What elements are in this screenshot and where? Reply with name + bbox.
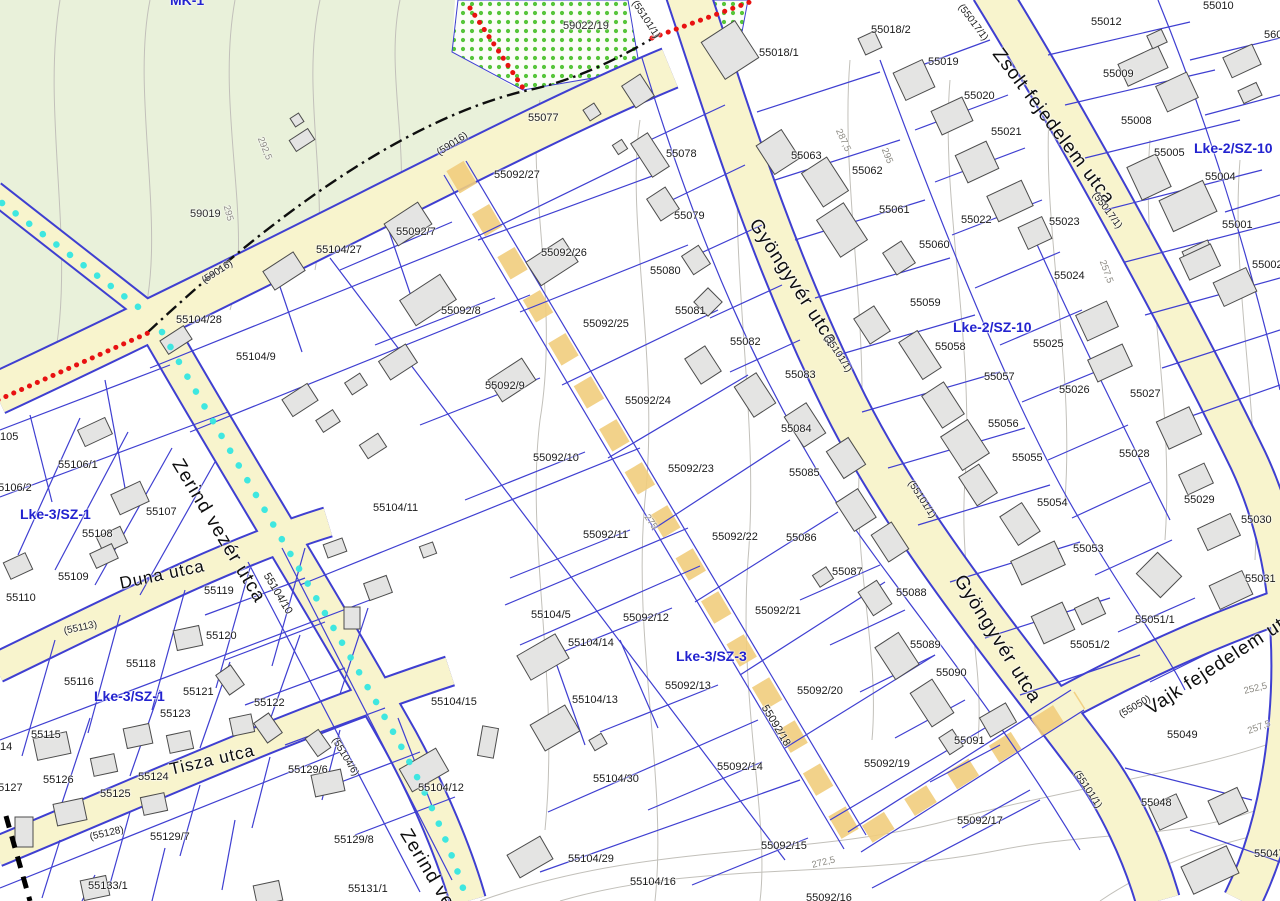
zone-label: Lke-2/SZ-10 [1194,140,1273,156]
contour-label: 295 [879,146,895,165]
parcel-label: 55059 [910,297,941,309]
parcel-label: 55107 [146,506,177,518]
parcel-label: 55119 [204,585,234,597]
parcel-label: 55088 [896,587,927,599]
parcel-label: 55104/9 [236,351,276,363]
parcel-label: 55092/26 [541,247,587,259]
parcel-label: 55118 [126,658,156,670]
road-ref-label: (59016) [200,258,235,286]
parcel-label: 55086 [786,532,817,544]
parcel-label: 55051/1 [1135,614,1175,626]
parcel-label: 55092/18 [759,703,793,749]
parcel-label: 55083 [785,369,816,381]
parcel-label: 55121 [183,686,214,698]
map-labels: MK-1Lke-3/SZ-1Lke-3/SZ-1Lke-3/SZ-3Lke-2/… [0,0,1280,901]
road-ref-label: (55101/1) [905,479,938,521]
street-label: Gyöngyvér utca [949,571,1046,707]
parcel-label: 55055 [1012,452,1043,464]
parcel-label: 55092/12 [623,612,669,624]
street-label: Zerind vezér utca [395,825,498,901]
parcel-label: 55092/23 [668,463,714,475]
parcel-label: 55079 [674,210,705,222]
parcel-label: 55048 [1141,797,1172,809]
parcel-label: 55126 [43,774,74,786]
zone-label: Lke-3/SZ-3 [676,648,747,664]
zone-label: Lke-3/SZ-1 [20,506,91,522]
parcel-label: 55129/7 [150,831,190,843]
parcel-label: 55010 [1203,0,1234,12]
parcel-label: 55092/15 [761,840,807,852]
parcel-label: 55131/1 [348,883,388,895]
parcel-label: 55092/21 [755,605,801,617]
parcel-label: 55089 [910,639,941,651]
parcel-label: 55092/19 [864,758,910,770]
parcel-label: 55024 [1054,270,1085,282]
parcel-label: 55056 [988,418,1019,430]
parcel-label: 55104/5 [531,609,571,621]
parcel-label: 55090 [936,667,967,679]
parcel-label: 55092/24 [625,395,671,407]
parcel-label: 560 [1264,29,1280,41]
parcel-label: 55008 [1121,115,1152,127]
parcel-label: 55082 [730,336,761,348]
parcel-label: 55025 [1033,338,1064,350]
parcel-label: 55020 [964,90,995,102]
parcel-label: 55005 [1154,147,1185,159]
parcel-label: 55058 [935,341,966,353]
parcel-label: 55077 [528,112,559,124]
parcel-label: 55129/6 [288,764,328,776]
parcel-label: 55104/30 [593,773,639,785]
parcel-label: 55051/2 [1070,639,1110,651]
parcel-label: 55019 [928,56,959,68]
parcel-label: 55092/9 [485,380,525,392]
parcel-label: 14 [0,741,12,753]
parcel-label: 55124 [138,771,169,783]
road-ref-label: (55128) [89,824,125,842]
parcel-label: 55104/27 [316,244,362,256]
parcel-label: 55091 [954,735,985,747]
parcel-label: 55104/14 [568,637,614,649]
parcel-label: 55080 [650,265,681,277]
road-ref-label: (55113) [63,619,98,637]
parcel-label: 55053 [1073,543,1104,555]
parcel-label: 55023 [1049,216,1080,228]
contour-label: 272,5 [811,854,837,870]
parcel-label: 55018/2 [871,24,911,36]
contour-label: 295 [221,204,236,222]
parcel-label: 55116 [64,676,94,688]
contour-label: 257,5 [1097,259,1115,285]
parcel-label: 55123 [160,708,191,720]
parcel-label: 55054 [1037,497,1068,509]
parcel-label: 55104/13 [572,694,618,706]
parcel-label: 55106/1 [58,459,98,471]
parcel-label: 55022 [961,214,992,226]
parcel-label: 55092/16 [806,892,852,901]
zone-label: MK-1 [170,0,204,8]
parcel-label: 55061 [879,204,910,216]
parcel-label: 55062 [852,165,883,177]
parcel-label: 55129/8 [334,834,374,846]
contour-label: 287,5 [833,127,853,153]
parcel-label: 55047 [1254,848,1280,860]
parcel-label: 55109 [58,571,89,583]
parcel-label: 55027 [1130,388,1161,400]
parcel-label: 55092/20 [797,685,843,697]
contour-label: 257,5 [1246,718,1272,736]
parcel-label: 55092/7 [396,226,436,238]
parcel-label: 55104/16 [630,876,676,888]
parcel-label: 55063 [791,150,822,162]
parcel-label: 55133/1 [88,880,128,892]
parcel-label: 55021 [991,126,1022,138]
parcel-label: 55087 [832,566,863,578]
zone-label: Lke-2/SZ-10 [953,319,1032,335]
parcel-label: 55078 [666,148,697,160]
road-ref-label: (55017/1) [956,2,991,43]
parcel-label: 55104/11 [373,502,418,514]
parcel-label: 55104/12 [418,782,464,794]
parcel-label: 55049 [1167,729,1198,741]
parcel-label: 55085 [789,467,820,479]
parcel-label: 55108 [82,528,113,540]
street-label: Gyöngyvér utca [744,215,843,350]
street-label: Duna utca [118,556,207,594]
road-ref-label: (55101/1) [629,0,662,40]
parcel-label: 55057 [984,371,1015,383]
parcel-label: 55104/15 [431,696,477,708]
contour-label: 292,5 [255,135,274,161]
contour-label: 275 [641,512,659,531]
parcel-label: 55115 [31,729,61,741]
parcel-label: 55060 [919,239,950,251]
street-label: Tisza utca [168,741,257,780]
area-label: 59019 [190,208,221,220]
parcel-label: 55001 [1222,219,1253,231]
road-ref-label: (55104/6) [329,736,360,778]
parcel-label: 55104/28 [176,314,222,326]
zone-label: Lke-3/SZ-1 [94,688,165,704]
parcel-label: 55029 [1184,494,1215,506]
parcel-label: 55120 [206,630,237,642]
parcel-label: 55009 [1103,68,1134,80]
parcel-label: 105 [0,431,18,443]
cadastral-map[interactable]: MK-1Lke-3/SZ-1Lke-3/SZ-1Lke-3/SZ-3Lke-2/… [0,0,1280,901]
parcel-label: 55031 [1245,573,1276,585]
parcel-label: 55092/27 [494,169,540,181]
parcel-label: 55092/8 [441,305,481,317]
parcel-label: 55092/13 [665,680,711,692]
area-label: 59022/19 [563,20,609,32]
parcel-label: 55110 [6,592,36,604]
parcel-label: 55092/14 [717,761,763,773]
parcel-label: 55092/22 [712,531,758,543]
parcel-label: 55018/1 [759,47,799,59]
parcel-label: 55004 [1205,171,1236,183]
parcel-label: 55081 [675,305,706,317]
parcel-label: 55092/11 [583,529,628,541]
parcel-label: 55092/17 [957,815,1003,827]
parcel-label: 55104/29 [568,853,614,865]
road-ref-label: (55101/1) [1071,769,1104,811]
parcel-label: 55026 [1059,384,1090,396]
parcel-label: 55125 [100,788,131,800]
parcel-label: 55030 [1241,514,1272,526]
parcel-label: 55084 [781,423,812,435]
parcel-label: 55127 [0,782,23,794]
parcel-label: 55092/25 [583,318,629,330]
parcel-label: 55002 [1252,259,1280,271]
parcel-label: 55106/2 [0,482,32,494]
parcel-label: 55092/10 [533,452,579,464]
parcel-label: 55122 [254,697,285,709]
parcel-label: 55028 [1119,448,1150,460]
road-ref-label: (59016) [435,130,470,158]
parcel-label: 55012 [1091,16,1122,28]
contour-label: 252,5 [1243,680,1269,696]
